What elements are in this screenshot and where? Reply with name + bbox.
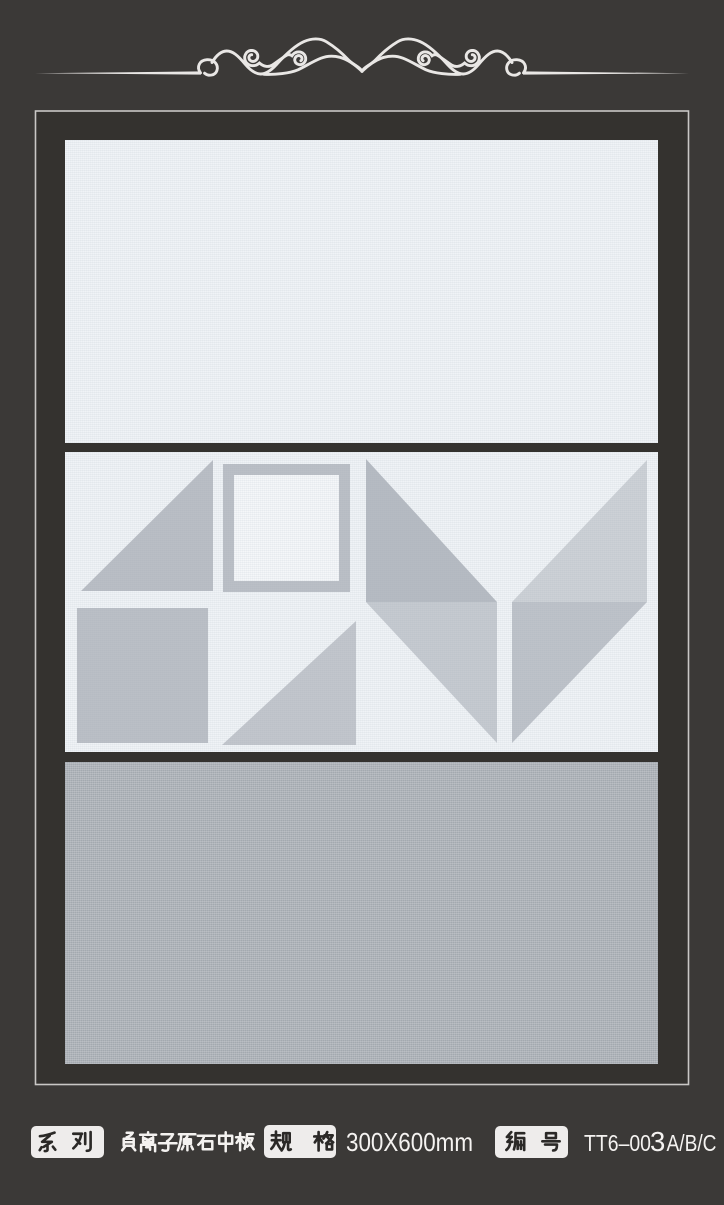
svg-text:300X600mm: 300X600mm bbox=[346, 1127, 473, 1157]
svg-text:3: 3 bbox=[650, 1126, 665, 1157]
svg-text:A/B/C: A/B/C bbox=[667, 1130, 717, 1156]
svg-text:TT6–00: TT6–00 bbox=[584, 1130, 651, 1156]
